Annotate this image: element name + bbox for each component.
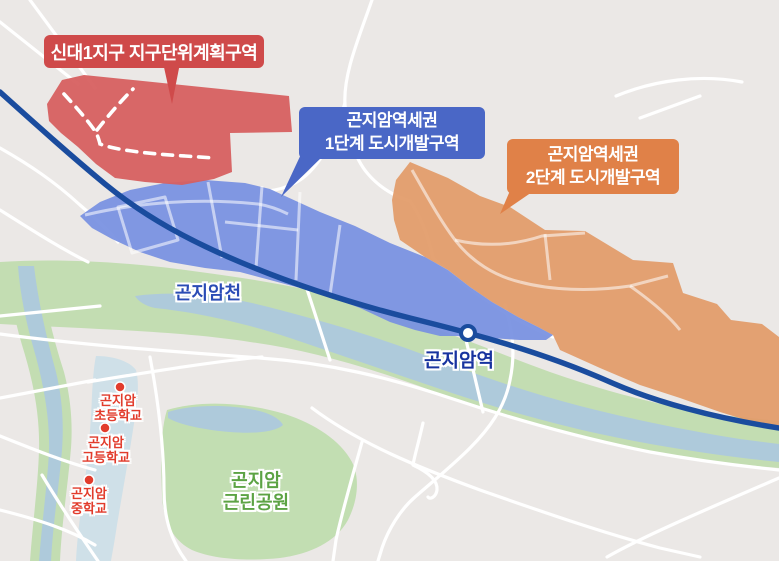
station-marker xyxy=(461,326,475,340)
callout-phase2-line2: 2단계 도시개발구역 xyxy=(507,167,679,190)
school-middle-line2: 중학교 xyxy=(71,502,107,517)
school-high-dot xyxy=(100,423,110,433)
school-high-line2: 고등학교 xyxy=(82,451,130,466)
school-elementary-line1: 곤지암 xyxy=(94,394,142,409)
school-middle-line1: 곤지암 xyxy=(71,487,107,502)
school-elementary-line2: 초등학교 xyxy=(94,409,142,424)
callout-sindae-zone: 신대1지구 지구단위계획구역 xyxy=(44,35,264,68)
callout-phase1-line2: 1단계 도시개발구역 xyxy=(299,133,485,156)
school-elementary-label: 곤지암 초등학교 xyxy=(94,394,142,424)
river-label: 곤지암천 xyxy=(175,283,241,303)
park-label-line1: 곤지암 xyxy=(223,470,289,492)
callout-phase1-zone: 곤지암역세권 1단계 도시개발구역 xyxy=(299,107,485,159)
station-label: 곤지암역 xyxy=(424,350,494,371)
callout-sindae-text: 신대1지구 지구단위계획구역 xyxy=(44,39,264,65)
park-label-line2: 근린공원 xyxy=(223,492,289,514)
school-high-line1: 곤지암 xyxy=(82,436,130,451)
map-canvas: 신대1지구 지구단위계획구역 곤지암역세권 1단계 도시개발구역 곤지암역세권 … xyxy=(0,0,779,561)
school-middle-label: 곤지암 중학교 xyxy=(71,487,107,517)
school-middle-dot xyxy=(84,475,94,485)
base-map xyxy=(0,0,779,561)
park-label: 곤지암 근린공원 xyxy=(223,470,289,513)
school-high-label: 곤지암 고등학교 xyxy=(82,436,130,466)
callout-phase2-zone: 곤지암역세권 2단계 도시개발구역 xyxy=(507,139,679,194)
school-elementary-dot xyxy=(115,382,125,392)
callout-phase1-line1: 곤지암역세권 xyxy=(299,110,485,133)
callout-phase2-line1: 곤지암역세권 xyxy=(507,144,679,167)
